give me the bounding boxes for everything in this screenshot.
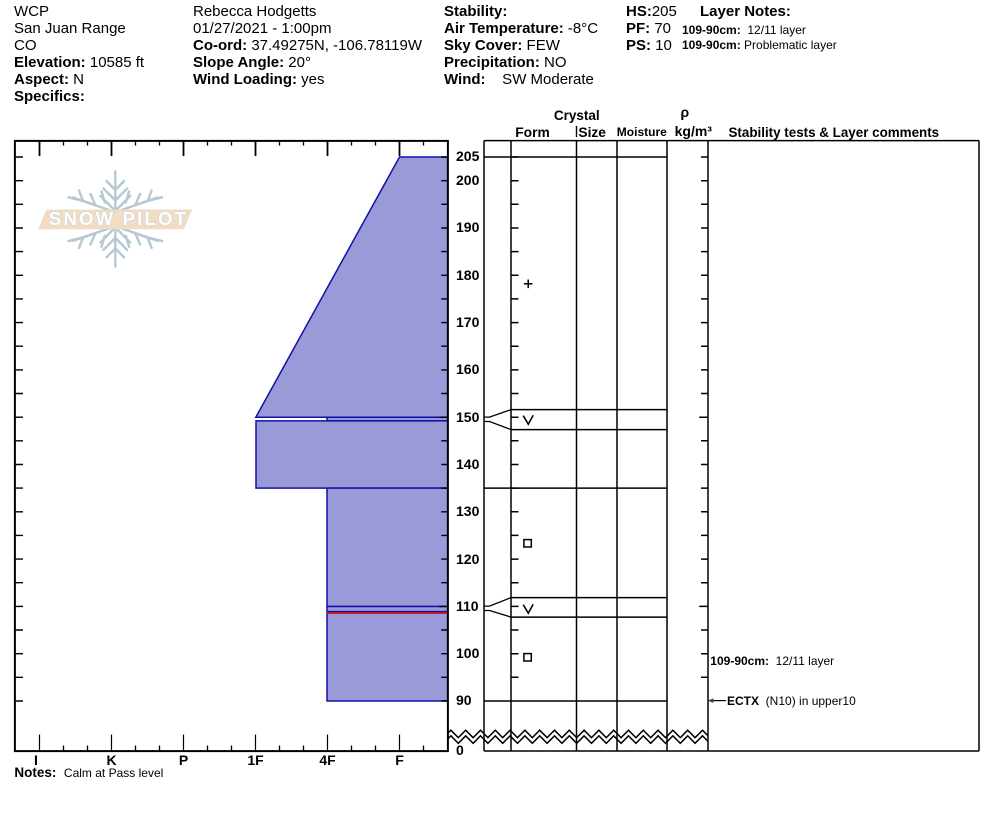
svg-text:SNOW PILOT: SNOW PILOT [49,208,188,229]
